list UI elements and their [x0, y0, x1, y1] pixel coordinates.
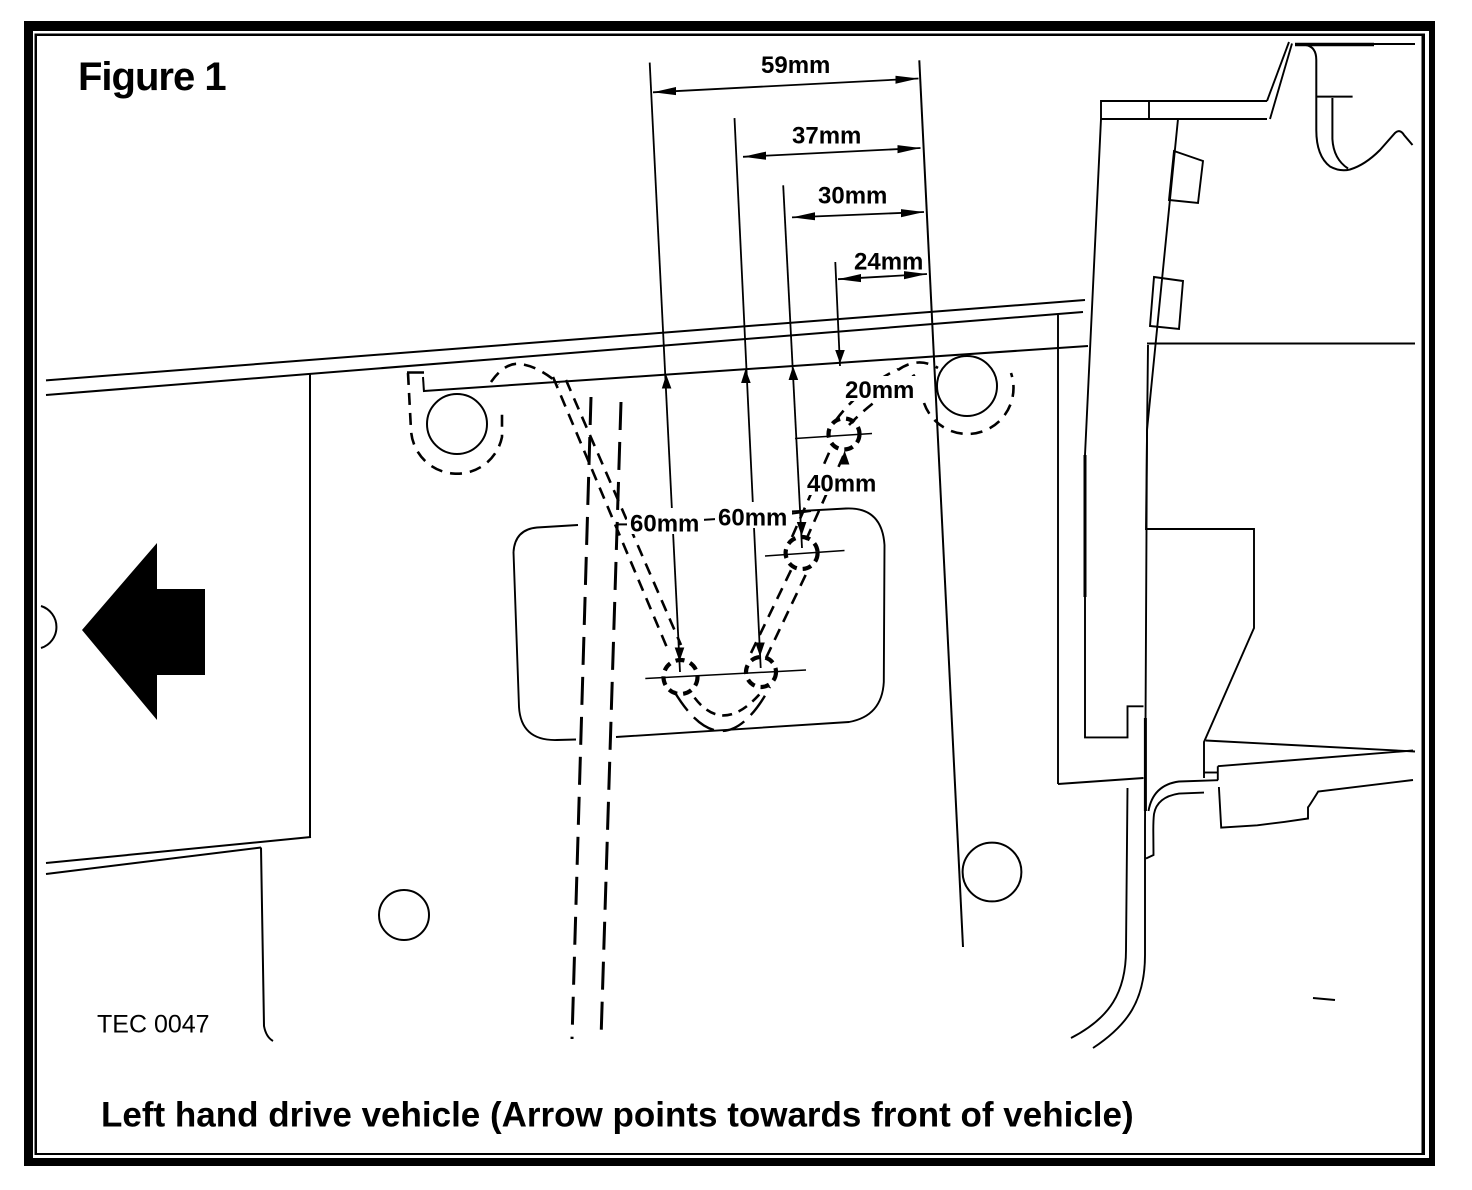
- svg-text:30mm: 30mm: [818, 183, 887, 210]
- svg-text:37mm: 37mm: [792, 123, 861, 150]
- svg-text:59mm: 59mm: [761, 52, 830, 79]
- svg-text:TEC 0047: TEC 0047: [97, 1011, 210, 1039]
- svg-text:60mm: 60mm: [630, 511, 699, 538]
- svg-text:20mm: 20mm: [845, 377, 914, 404]
- svg-text:Left hand drive vehicle (Arrow: Left hand drive vehicle (Arrow points to…: [101, 1096, 1134, 1135]
- svg-text:60mm: 60mm: [718, 505, 787, 532]
- svg-text:40mm: 40mm: [807, 471, 876, 498]
- svg-text:Figure 1: Figure 1: [78, 55, 226, 99]
- svg-text:24mm: 24mm: [854, 249, 923, 276]
